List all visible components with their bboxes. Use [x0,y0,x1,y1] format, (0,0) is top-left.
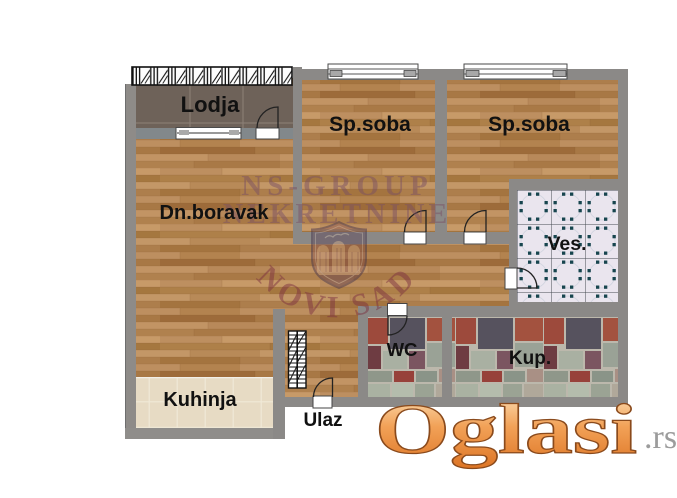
svg-text:Sp.soba: Sp.soba [329,113,411,136]
svg-text:Sp.soba: Sp.soba [488,113,570,136]
svg-text:Kup.: Kup. [509,348,551,369]
svg-text:Ulaz: Ulaz [303,410,342,431]
svg-text:NS-GROUP: NS-GROUP [241,170,432,202]
svg-text:Kuhinja: Kuhinja [163,389,237,411]
svg-text:Lodja: Lodja [181,92,240,117]
svg-text:Oglasi: Oglasi [375,391,637,469]
svg-text:Dn.boravak: Dn.boravak [160,202,270,224]
svg-text:.rs: .rs [644,419,677,456]
svg-text:WC: WC [387,339,418,360]
svg-text:Ves.: Ves. [547,233,586,255]
